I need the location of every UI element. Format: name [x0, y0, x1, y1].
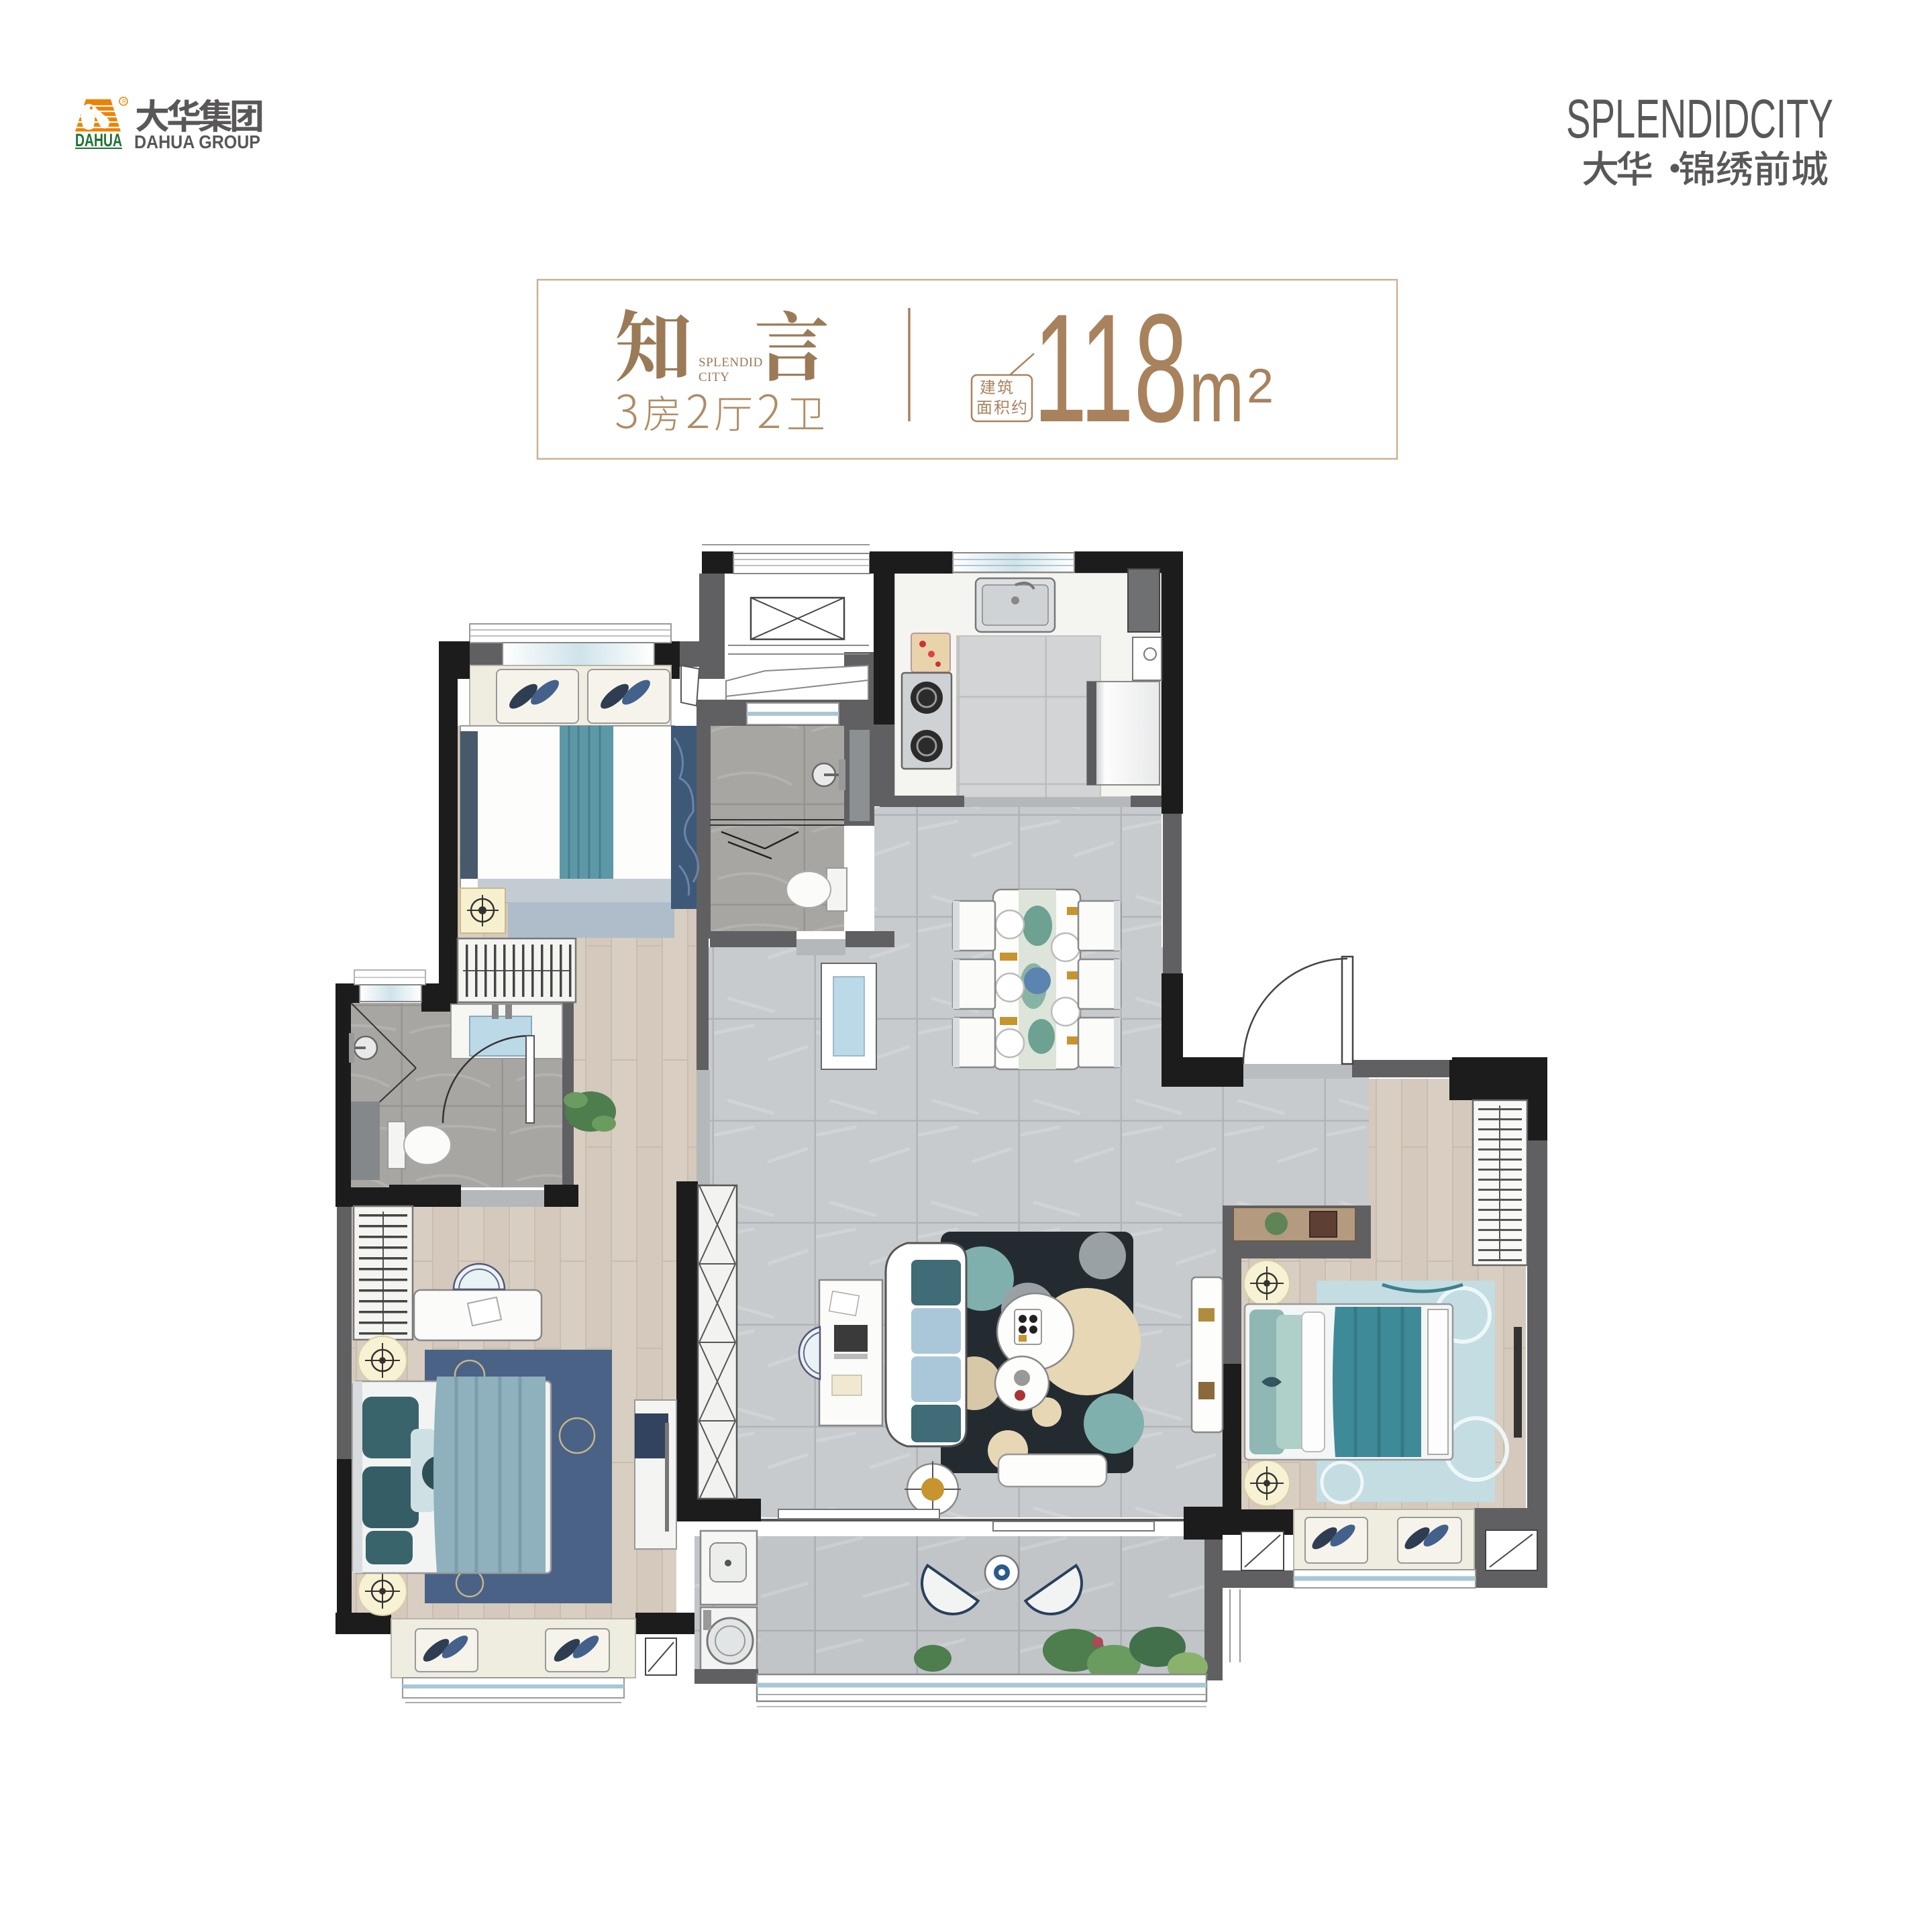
svg-text:DAHUA: DAHUA [75, 130, 122, 150]
svg-text:SPLENDID: SPLENDID [699, 356, 763, 370]
svg-text:R: R [122, 99, 126, 105]
svg-text:m: m [1189, 341, 1244, 440]
svg-text:CITY: CITY [699, 370, 729, 384]
svg-text:SPLENDIDCITY: SPLENDIDCITY [1566, 89, 1833, 150]
svg-text:DAHUA GROUP: DAHUA GROUP [134, 131, 260, 152]
svg-text:2: 2 [1247, 360, 1274, 413]
svg-text:118: 118 [1033, 282, 1188, 454]
